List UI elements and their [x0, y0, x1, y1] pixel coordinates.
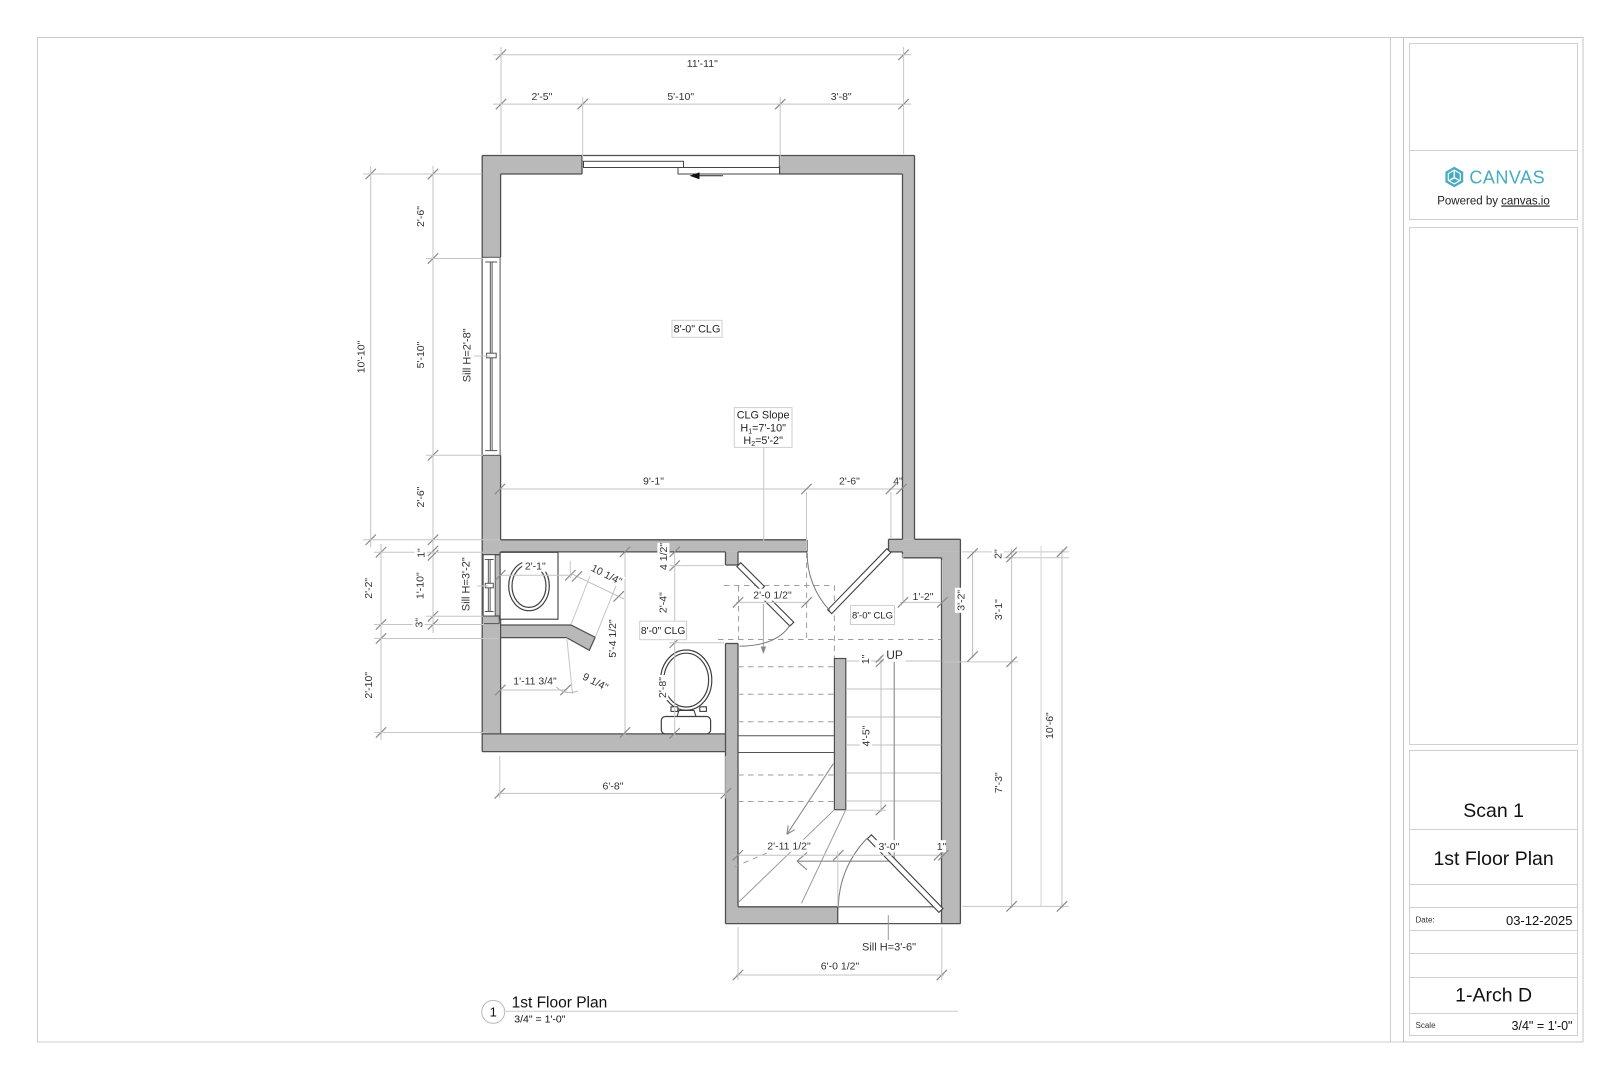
svg-text:8'-0" CLG: 8'-0" CLG [674, 324, 721, 336]
svg-text:Scan 1: Scan 1 [1463, 800, 1524, 822]
svg-text:2'-4": 2'-4" [658, 592, 670, 613]
svg-text:3'-2": 3'-2" [956, 590, 968, 611]
svg-text:1st Floor Plan: 1st Floor Plan [512, 995, 608, 1012]
svg-text:7'-3": 7'-3" [993, 772, 1005, 793]
svg-text:3/4" = 1'-0": 3/4" = 1'-0" [514, 1014, 565, 1026]
svg-text:Scale: Scale [1416, 1021, 1437, 1030]
svg-text:CANVAS: CANVAS [1469, 168, 1545, 188]
svg-text:1'-10": 1'-10" [415, 572, 427, 599]
svg-text:2'-2": 2'-2" [363, 578, 375, 599]
svg-text:1: 1 [490, 1005, 497, 1020]
svg-text:2'-6": 2'-6" [415, 206, 427, 227]
svg-text:3/4" = 1'-0": 3/4" = 1'-0" [1512, 1019, 1573, 1033]
svg-text:10'-6": 10'-6" [1044, 712, 1056, 739]
svg-text:Sill H=3'-6": Sill H=3'-6" [862, 942, 916, 954]
svg-text:UP: UP [886, 648, 903, 662]
svg-text:1-Arch D: 1-Arch D [1455, 985, 1532, 1007]
svg-text:2'-8": 2'-8" [657, 677, 669, 698]
svg-text:1st Floor Plan: 1st Floor Plan [1433, 848, 1553, 870]
svg-text:2'-1": 2'-1" [525, 561, 546, 573]
svg-text:8'-0" CLG: 8'-0" CLG [852, 610, 893, 621]
svg-text:2'-0 1/2": 2'-0 1/2" [753, 590, 792, 602]
svg-text:10'-10": 10'-10" [356, 340, 368, 373]
svg-text:2'-6": 2'-6" [415, 486, 427, 507]
svg-text:Sill H=2'-8": Sill H=2'-8" [462, 328, 474, 382]
svg-text:Date:: Date: [1416, 916, 1435, 925]
svg-text:Sill H=3'-2": Sill H=3'-2" [460, 557, 472, 611]
svg-text:4'-5": 4'-5" [861, 725, 873, 746]
svg-text:2'-10": 2'-10" [363, 672, 375, 699]
svg-text:1": 1" [416, 548, 428, 558]
svg-text:1": 1" [937, 841, 947, 853]
svg-text:03-12-2025: 03-12-2025 [1506, 913, 1573, 928]
svg-text:H2=5'-2": H2=5'-2" [743, 435, 783, 448]
svg-text:1": 1" [860, 654, 872, 664]
svg-text:3'-8": 3'-8" [831, 91, 852, 103]
svg-text:Powered by canvas.io: Powered by canvas.io [1437, 196, 1550, 208]
svg-text:2'-5": 2'-5" [531, 91, 552, 103]
svg-text:3": 3" [413, 618, 425, 628]
svg-text:4": 4" [893, 476, 903, 488]
svg-text:H1=7'-10": H1=7'-10" [740, 422, 786, 435]
svg-text:3'-1": 3'-1" [993, 599, 1005, 620]
svg-text:11'-11": 11'-11" [687, 58, 718, 70]
svg-text:1'-2": 1'-2" [913, 591, 934, 603]
svg-text:5'-10": 5'-10" [415, 341, 427, 368]
svg-text:1'-11 3/4": 1'-11 3/4" [513, 676, 557, 688]
svg-text:6'-8": 6'-8" [603, 781, 624, 793]
svg-text:2'-6": 2'-6" [839, 476, 860, 488]
svg-text:CLG Slope: CLG Slope [737, 409, 790, 421]
svg-text:8'-0" CLG: 8'-0" CLG [641, 626, 686, 637]
svg-text:3'-0": 3'-0" [878, 841, 899, 853]
svg-text:9'-1": 9'-1" [643, 476, 664, 488]
svg-text:6'-0 1/2": 6'-0 1/2" [821, 960, 860, 972]
svg-text:5'-10": 5'-10" [667, 91, 694, 103]
svg-text:2'-11 1/2": 2'-11 1/2" [767, 841, 811, 853]
svg-text:4 1/2": 4 1/2" [658, 543, 670, 570]
svg-text:2": 2" [993, 549, 1005, 559]
svg-text:5'-4 1/2": 5'-4 1/2" [607, 619, 619, 658]
